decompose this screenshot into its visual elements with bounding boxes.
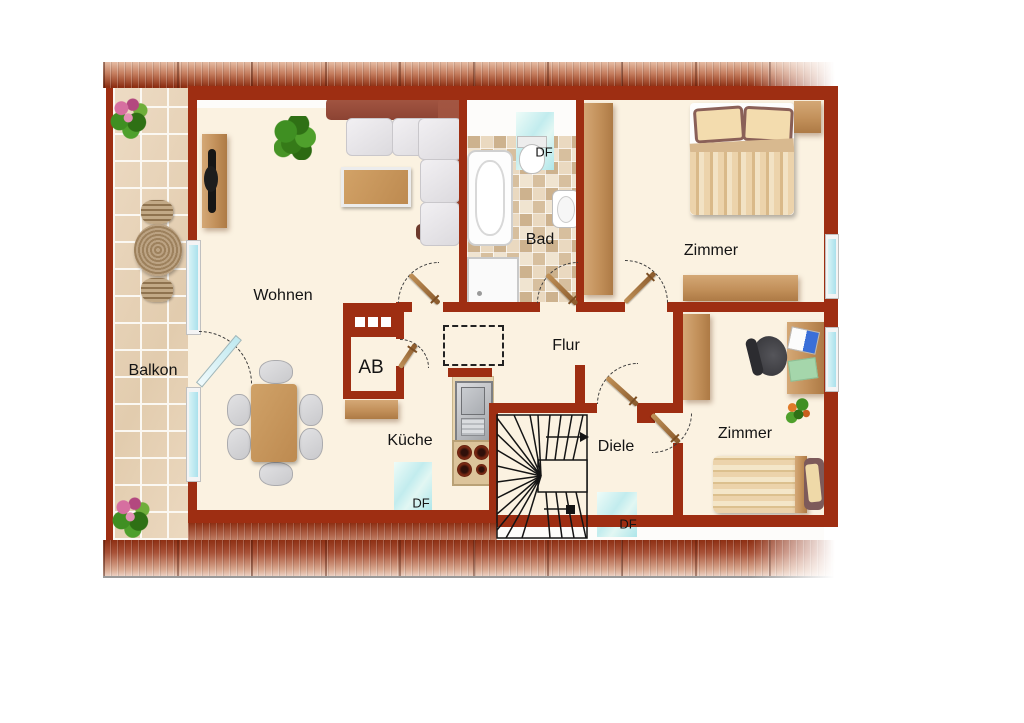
flower-pot-icon <box>112 494 150 538</box>
room-label-bad: Bad <box>526 231 554 249</box>
potted-plant-icon <box>783 397 814 427</box>
wall-opening-glass-block <box>381 317 391 327</box>
roof-edge-top <box>103 62 845 88</box>
wardrobe-icon <box>683 314 710 400</box>
wall-segment <box>448 368 492 377</box>
stove-burner <box>476 464 487 475</box>
room-label-balkon: Balkon <box>129 362 178 380</box>
sofa-cushion <box>420 159 460 203</box>
stove-burner <box>457 462 472 477</box>
room-label-ab: AB <box>358 357 383 379</box>
sofa-cushion <box>346 118 393 156</box>
tv-stand <box>204 166 218 192</box>
wall-segment <box>459 100 467 312</box>
kitchen-sink-icon <box>455 381 493 443</box>
wall-segment <box>673 443 683 515</box>
wall-segment <box>396 312 404 339</box>
chimney-outline <box>443 325 504 366</box>
stove-burner <box>474 445 489 460</box>
wall-segment <box>188 86 197 240</box>
roof-edge-bottom <box>103 540 845 578</box>
bed-pillow <box>693 105 745 143</box>
coffee-table-icon <box>341 167 411 207</box>
sink-drainer <box>461 418 485 436</box>
roof-strip-left <box>188 523 497 540</box>
dining-chair-icon <box>299 428 323 460</box>
room-label-kueche: Küche <box>387 432 432 450</box>
bed-pillow <box>804 458 824 510</box>
nightstand-icon <box>794 101 821 133</box>
skylight-label-diele: DF <box>619 517 636 532</box>
dining-chair-icon <box>299 394 323 426</box>
potted-plant-icon <box>274 116 316 160</box>
stove-burner <box>457 445 472 460</box>
balcony-chair-icon <box>141 200 173 224</box>
bathtub-icon <box>467 150 513 246</box>
room-label-zimmer-top: Zimmer <box>684 242 738 260</box>
dining-chair-icon <box>227 428 251 460</box>
dining-table-icon <box>251 384 297 462</box>
wall-segment <box>575 365 585 403</box>
wall-exterior-top <box>188 86 838 100</box>
flower-pot-icon <box>110 95 148 139</box>
wall-segment <box>396 302 412 312</box>
window <box>825 234 839 299</box>
shower-icon <box>467 257 519 306</box>
wall-segment <box>583 302 625 312</box>
storage-cabinet-icon <box>345 400 398 419</box>
basin-bowl <box>557 196 575 223</box>
wall-segment <box>673 312 683 403</box>
floorplan-canvas: Balkon Wohnen Bad Zimmer Flur AB Küche D… <box>0 0 1024 723</box>
wall-segment <box>637 403 683 413</box>
wall-segment <box>343 391 404 399</box>
wall-exterior-right <box>824 86 838 527</box>
sofa-cushion <box>420 202 460 246</box>
wall-segment <box>343 303 351 399</box>
balcony-table-icon <box>134 224 182 276</box>
balcony-left-wall <box>106 88 113 540</box>
double-bed-icon <box>690 103 794 215</box>
wall-segment <box>188 480 197 513</box>
sink-basin <box>461 387 485 415</box>
window <box>825 327 839 392</box>
skylight-label-kueche: DF <box>412 496 429 511</box>
balcony-floor <box>113 88 188 540</box>
dining-chair-icon <box>259 462 293 486</box>
wall-segment <box>667 302 824 312</box>
skylight-label-bad: DF <box>535 145 552 160</box>
wall-opening-glass-block <box>368 317 378 327</box>
sofa-cushion <box>418 118 462 160</box>
room-label-flur: Flur <box>552 337 580 355</box>
pillow-inner <box>805 463 822 502</box>
room-label-wohnen: Wohnen <box>253 287 312 305</box>
bed-duvet <box>690 152 794 215</box>
wardrobe-icon <box>583 103 613 295</box>
shower-drain <box>477 291 482 296</box>
wall-opening-glass-block <box>355 317 365 327</box>
desk-mat <box>788 357 819 382</box>
dining-chair-icon <box>259 360 293 384</box>
wall-exterior-bottom <box>188 510 497 523</box>
window <box>186 387 201 482</box>
dining-chair-icon <box>227 394 251 426</box>
room-label-diele: Diele <box>598 438 634 456</box>
staircase-icon <box>496 410 592 542</box>
bathtub-basin <box>475 160 505 236</box>
sideboard-icon <box>683 275 798 301</box>
room-label-zimmer-bottom: Zimmer <box>718 425 772 443</box>
balcony-chair-icon <box>141 278 173 302</box>
wall-segment <box>443 302 540 312</box>
window <box>186 240 201 335</box>
single-bed-icon <box>713 456 795 513</box>
